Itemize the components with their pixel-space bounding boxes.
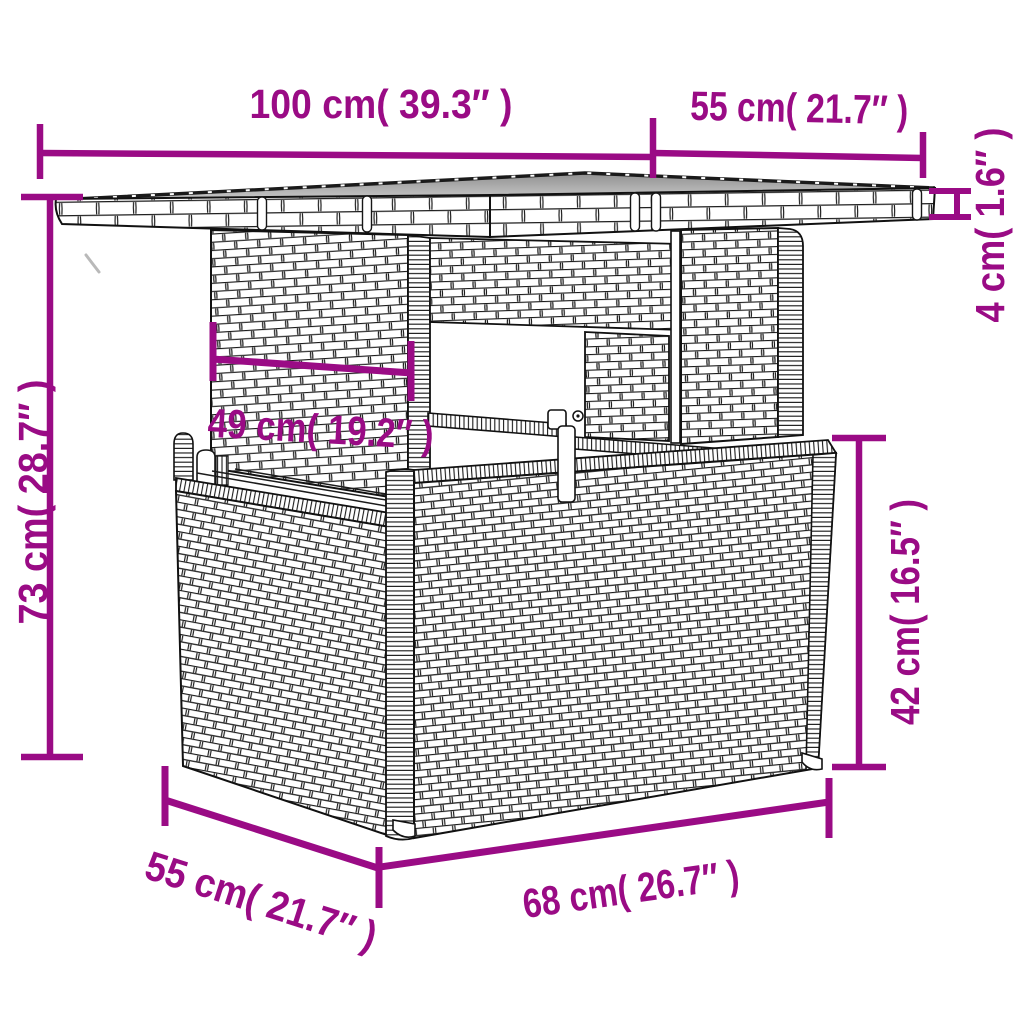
svg-text:55 cm( 21.7″ ): 55 cm( 21.7″ ) (690, 83, 909, 134)
svg-text:73 cm( 28.7″ ): 73 cm( 28.7″ ) (10, 380, 56, 625)
svg-text:100 cm( 39.3″ ): 100 cm( 39.3″ ) (250, 81, 513, 127)
svg-text:4 cm( 1.6″ ): 4 cm( 1.6″ ) (967, 128, 1013, 323)
svg-text:42 cm( 16.5″ ): 42 cm( 16.5″ ) (882, 499, 928, 725)
